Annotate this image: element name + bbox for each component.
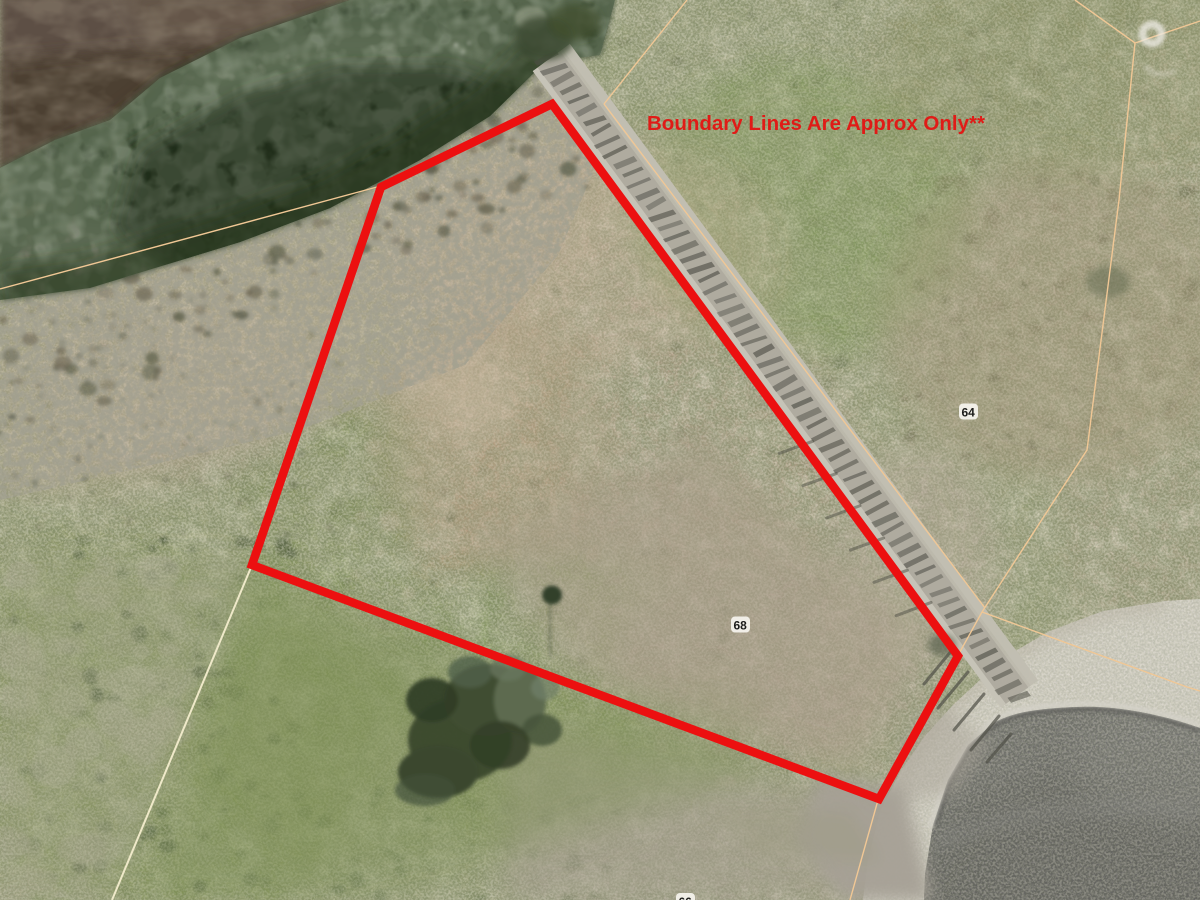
svg-text:64: 64 (962, 406, 976, 420)
svg-text:Boundary Lines Are Approx Only: Boundary Lines Are Approx Only** (647, 112, 985, 135)
svg-text:66: 66 (679, 895, 693, 900)
svg-text:68: 68 (734, 619, 748, 633)
